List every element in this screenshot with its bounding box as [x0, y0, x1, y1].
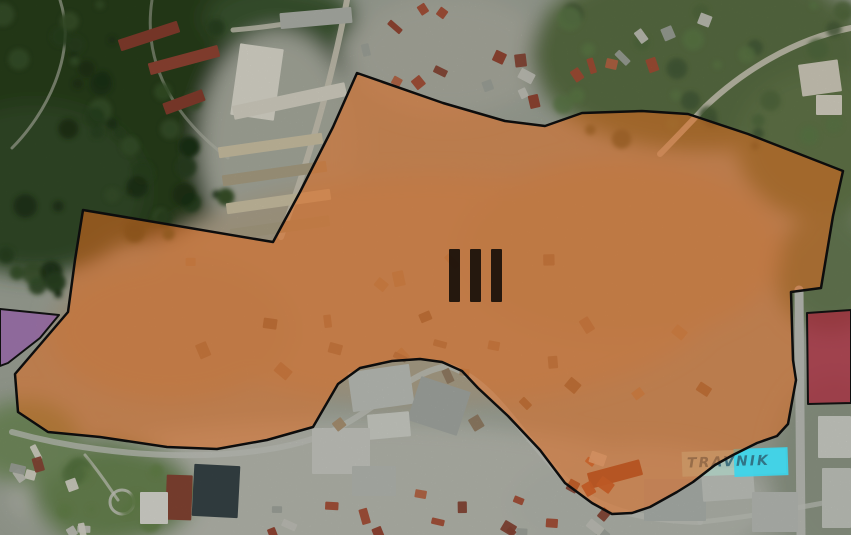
numeral-bar — [470, 249, 481, 302]
map-viewport[interactable]: TRAVNIK III — [0, 0, 851, 535]
numeral-bar — [449, 249, 460, 302]
numeral-bar — [491, 249, 502, 302]
east-zone-polygon[interactable] — [807, 310, 851, 404]
zone-iii-marker: III — [449, 249, 502, 302]
